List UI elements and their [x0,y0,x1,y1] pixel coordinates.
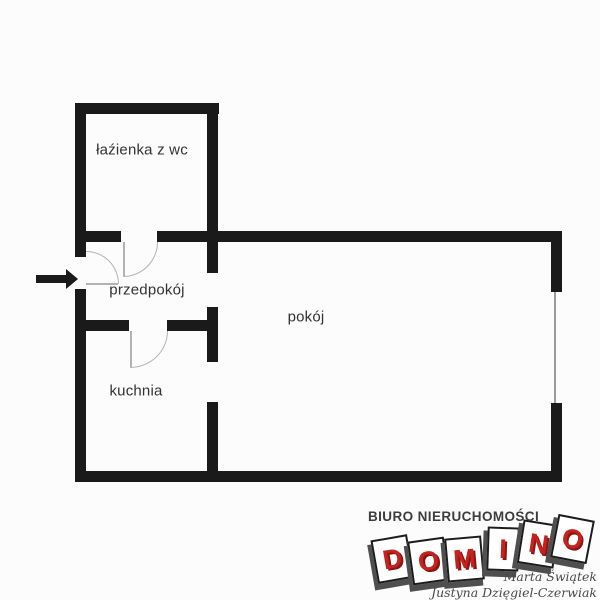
wall-right-upper [551,231,562,292]
label-room: pokój [288,309,325,326]
logo-letter-m: M [452,545,477,574]
wall-interior-vertical-upper [207,103,218,273]
logo-letter-i: I [499,535,507,562]
floorplan-image: łaźienka z wc przedpokój kuchnia pokój B… [0,0,600,600]
kitchen-door-arc [130,331,168,368]
label-bathroom: łaźienka z wc [96,142,188,159]
bathroom-door-leaf [123,242,125,276]
logo-tile-o2: O [550,514,595,564]
bathroom-door-arc [123,242,158,277]
logo-tile-i: I [486,526,520,571]
entrance-arrow-shaft [36,275,66,283]
wall-bathroom-top [75,103,219,114]
logo-tile-o1: O [407,537,450,586]
wall-bottom [75,471,562,482]
entrance-arrow-icon [66,269,78,289]
logo-letter-d: D [381,544,405,574]
logo-tile-m: M [444,535,485,582]
window-line [554,292,556,403]
label-hallway: przedpokój [109,282,184,299]
wall-interior-vertical-middle [207,307,218,362]
agent-name-1: Marta Świątek [504,569,597,584]
wall-right-lower [551,403,562,482]
agency-type-text: BIURO NIERUCHOMOŚCI [368,509,539,524]
entrance-door-arc [86,251,119,284]
logo-letter-o2: O [560,524,586,555]
agent-name-2: Justyna Dzięgiel-Czerwiak [431,585,597,600]
wall-left-lower [75,289,86,482]
logo-letter-n: N [527,529,550,559]
wall-main-horizontal-left [75,231,121,242]
kitchen-door-leaf [130,331,132,367]
logo-letter-o1: O [416,546,441,576]
wall-kitchen-top-right [167,320,218,331]
wall-kitchen-top-left [75,320,129,331]
wall-interior-vertical-lower [207,402,218,482]
label-kitchen: kuchnia [109,383,162,400]
